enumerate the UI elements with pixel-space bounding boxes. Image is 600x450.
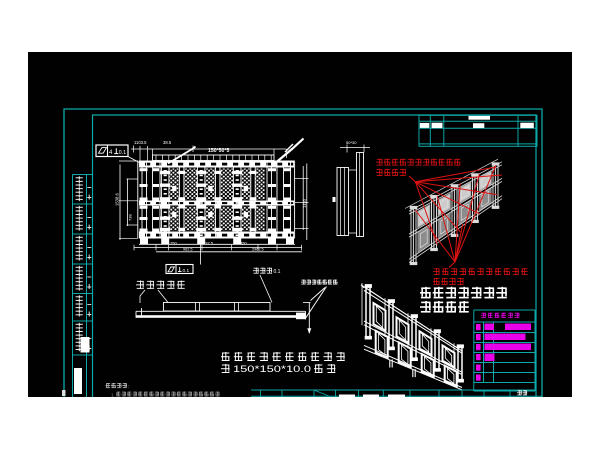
svg-text:450: 450 <box>240 240 247 245</box>
svg-text:1450: 1450 <box>302 198 307 208</box>
svg-text:2962.5: 2962.5 <box>252 248 264 252</box>
svg-text:962.5: 962.5 <box>183 248 193 252</box>
svg-text:0.1: 0.1 <box>119 150 126 156</box>
svg-text:737.5: 737.5 <box>203 240 214 245</box>
svg-text:38.5: 38.5 <box>163 140 172 145</box>
svg-text:0.1: 0.1 <box>183 268 190 274</box>
svg-text:150*150*10.0: 150*150*10.0 <box>233 364 311 374</box>
svg-text:150*50*5: 150*50*5 <box>208 148 229 154</box>
svg-text:50*30: 50*30 <box>346 140 357 145</box>
svg-text:0.1: 0.1 <box>274 269 281 275</box>
svg-text:1103.5: 1103.5 <box>134 140 147 145</box>
svg-text::: : <box>128 384 129 390</box>
svg-text:738: 738 <box>128 214 133 221</box>
svg-text:1.: 1. <box>111 392 115 397</box>
svg-text:1538.6: 1538.6 <box>115 193 120 206</box>
svg-text:750: 750 <box>170 240 177 245</box>
